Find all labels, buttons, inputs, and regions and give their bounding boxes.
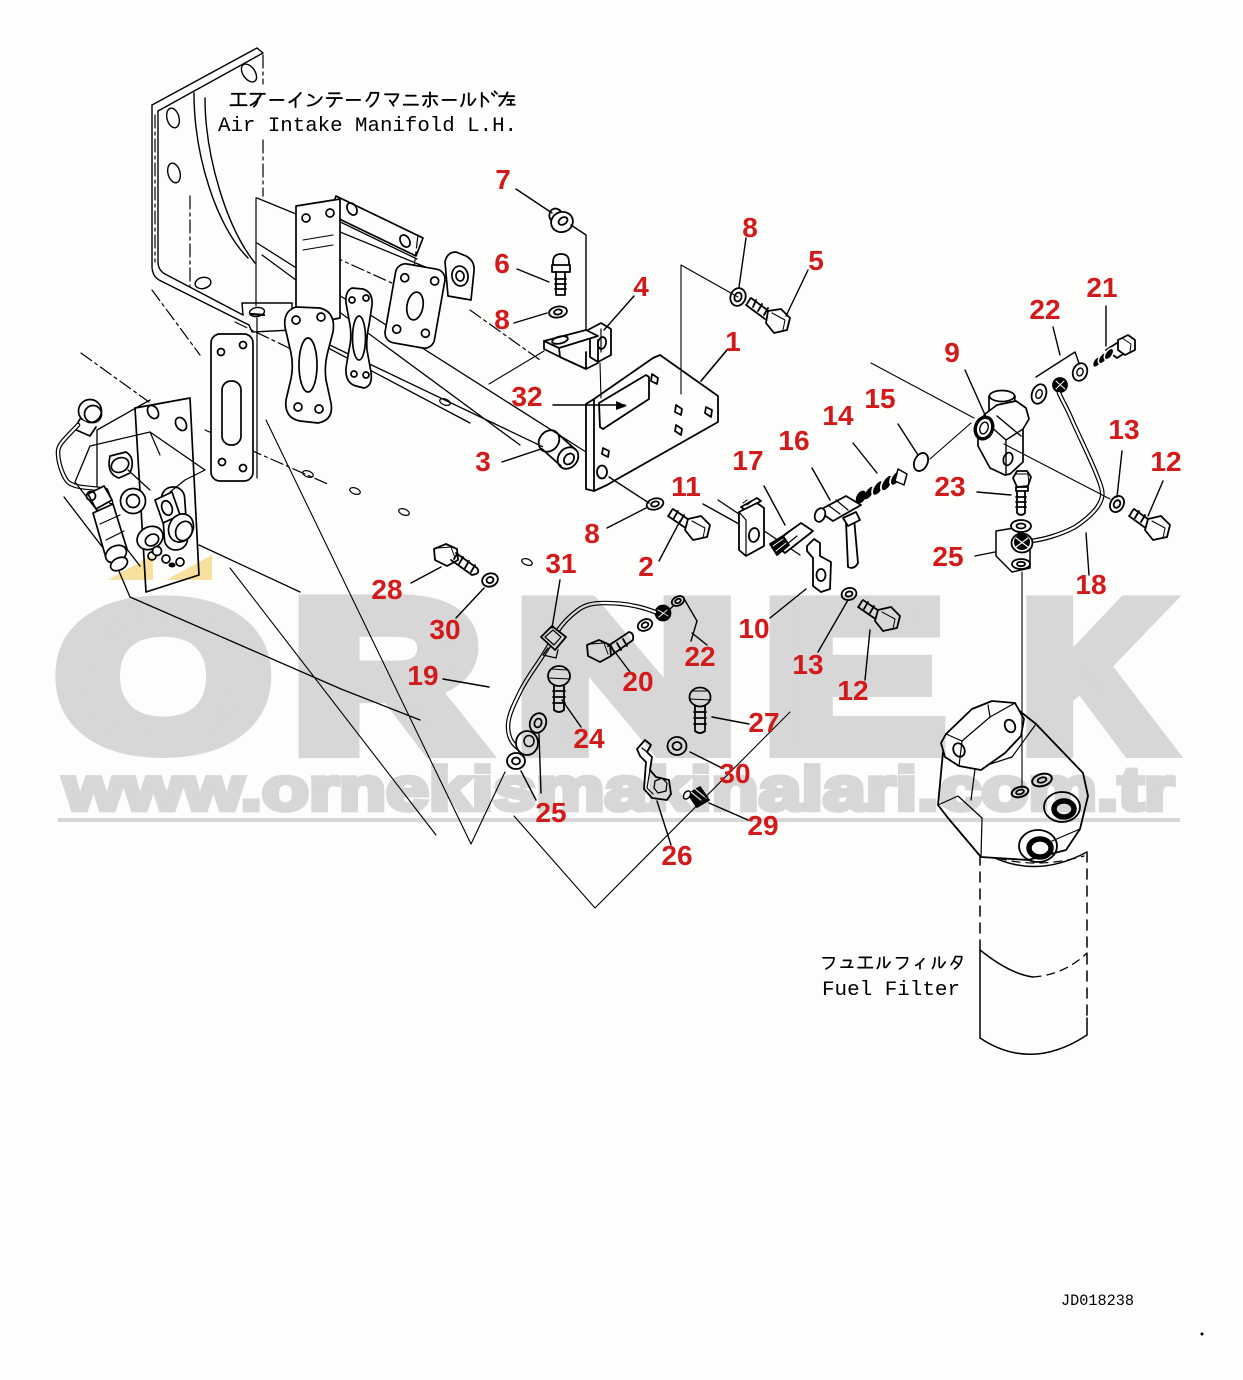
svg-text:Fuel Filter: Fuel Filter	[822, 979, 960, 1002]
svg-text:1: 1	[725, 326, 741, 357]
svg-text:5: 5	[808, 245, 824, 276]
svg-text:13: 13	[1108, 414, 1139, 445]
svg-text:27: 27	[748, 707, 779, 738]
svg-text:22: 22	[684, 641, 715, 672]
svg-text:29: 29	[747, 810, 778, 841]
svg-text:9: 9	[944, 337, 960, 368]
svg-text:8: 8	[494, 304, 510, 335]
svg-text:18: 18	[1075, 569, 1106, 600]
svg-text:25: 25	[535, 797, 566, 828]
svg-text:10: 10	[738, 613, 769, 644]
svg-text:6: 6	[494, 248, 510, 279]
svg-text:8: 8	[584, 518, 600, 549]
svg-text:22: 22	[1029, 294, 1060, 325]
svg-text:25: 25	[932, 541, 963, 572]
svg-text:12: 12	[1150, 446, 1181, 477]
svg-text:15: 15	[864, 383, 895, 414]
svg-text:24: 24	[573, 723, 605, 754]
svg-text:14: 14	[822, 400, 854, 431]
svg-text:3: 3	[475, 446, 491, 477]
svg-text:4: 4	[633, 271, 649, 302]
svg-text:17: 17	[732, 445, 763, 476]
svg-text:19: 19	[407, 660, 438, 691]
svg-text:16: 16	[778, 425, 809, 456]
svg-text:28: 28	[371, 574, 402, 605]
svg-text:20: 20	[622, 666, 653, 697]
svg-text:8: 8	[742, 212, 758, 243]
svg-text:www.ornekismakinalari.com.tr: www.ornekismakinalari.com.tr	[62, 755, 1173, 823]
svg-text:12: 12	[837, 675, 868, 706]
svg-text:13: 13	[792, 649, 823, 680]
svg-text:23: 23	[934, 471, 965, 502]
svg-text:21: 21	[1086, 272, 1117, 303]
svg-text:2: 2	[638, 551, 654, 582]
svg-text:11: 11	[671, 471, 701, 502]
svg-text:26: 26	[661, 840, 692, 871]
svg-text:31: 31	[545, 548, 576, 579]
svg-text:JD018238: JD018238	[1061, 1292, 1134, 1310]
svg-text:Air Intake Manifold L.H.: Air Intake Manifold L.H.	[218, 115, 517, 138]
svg-text:32: 32	[511, 381, 542, 412]
svg-text:7: 7	[495, 164, 511, 195]
svg-text:30: 30	[719, 758, 750, 789]
svg-text:30: 30	[429, 614, 460, 645]
